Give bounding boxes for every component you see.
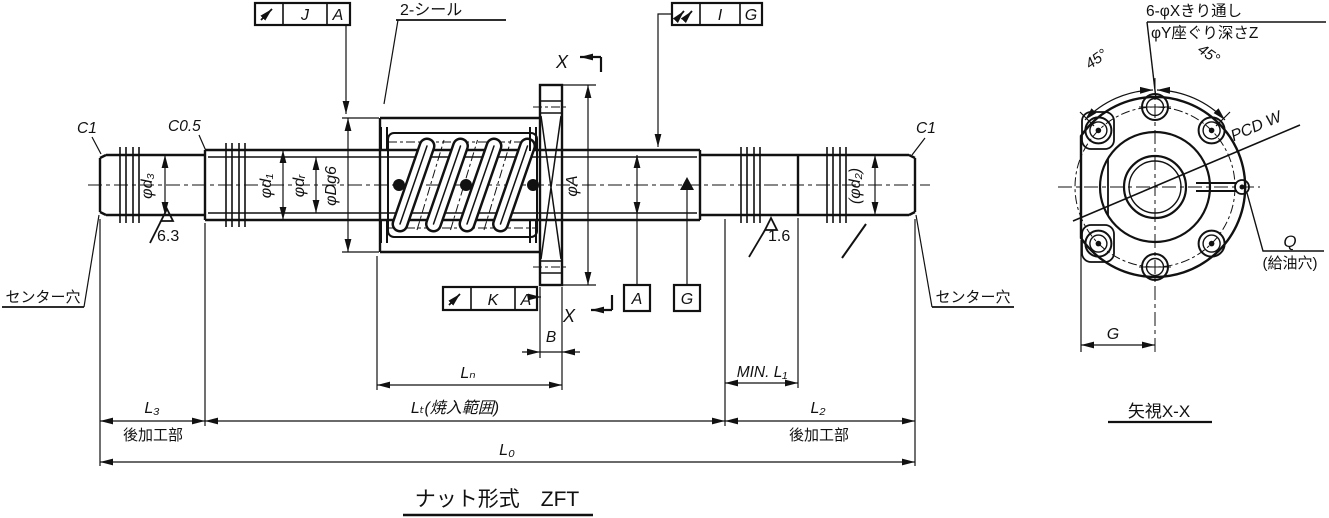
center-hole-left: センター穴 [2,215,99,307]
datum-label: G [681,291,693,308]
tolerance-frame-journal: I G [658,3,762,147]
ball-screw-drawing: J A I G K A A G φd₃ φd [0,0,1329,518]
total-runout-icon [676,11,692,20]
dia-dr-label: φdᵣ [291,174,308,197]
finish-mark-d2 [842,224,866,258]
tolerance-value: J [300,7,310,24]
title-text: ナット形式 ZFT [415,488,580,511]
section-letter: X [555,52,569,72]
bolt-holes-note: 6-φXきり通し [1146,2,1242,20]
center-hole-label: センター穴 [935,289,1010,306]
datum-g: G [674,177,700,311]
ball-track [393,140,539,230]
dim-G-label: G [1107,326,1119,343]
chamfer-step-label: C0.5 [168,118,201,135]
tolerance-value: I [718,7,723,24]
pcd-label: PCD W [1228,108,1285,145]
oil-hole: Q (給油穴) [1196,180,1324,272]
tolerance-value: K [488,292,500,309]
dia-D-label: φDg6 [323,166,340,206]
angle-left-label: 45° [1082,46,1110,73]
angle-right-label: 45° [1194,41,1222,68]
center-hole-label: センター穴 [5,289,80,306]
dim-Lt-label: Lₜ(焼入範囲) [411,399,499,417]
oil-hole-letter: Q [1283,232,1296,251]
chamfer-right-label: C1 [916,120,936,137]
counterbore-note: φY座ぐり深さZ [1151,24,1258,42]
dim-L2-label: L₂ [811,400,826,417]
datum-label: A [631,291,643,308]
dia-d2-label: (φd₂) [847,168,864,204]
dim-B-label: B [546,329,556,346]
surface-finish-fine: 1.6 [749,218,790,257]
tolerance-frame-flange-face: K A [443,287,541,310]
dim-Ln-label: Lₙ [460,365,475,382]
dia-d3-label: φd₃ [139,173,156,199]
circular-runout-icon [449,294,460,305]
center-hole-right: センター穴 [916,215,1014,307]
oil-hole-note: (給油穴) [1263,255,1318,272]
chamfer-left-label: C1 [77,120,97,137]
dia-d1-label: φd₁ [258,174,275,198]
section-letter: X [562,306,576,326]
dia-A-label: φA [564,175,581,196]
tolerance-datum: G [745,7,757,24]
datum-a: A [624,155,650,311]
end-view: 45° 45° 6-φXきり通し φY座ぐり深さZ PCD W Q (給油穴) … [1073,2,1326,422]
section-arrow-bottom: X [562,295,612,326]
finish-fine-value: 1.6 [768,228,790,245]
tolerance-datum: A [332,7,344,24]
drawing-canvas: J A I G K A A G φd₃ φd [0,0,1329,518]
dim-L3-label: L₃ [144,400,159,417]
tolerance-datum: A [520,292,532,309]
dim-minL1-label: MIN. L₁ [737,364,788,381]
length-dimensions: B Lₙ MIN. L₁ L₃ Lₜ(焼入範囲) L₂ L₀ 後加工部 後加工部 [100,218,915,466]
dim-L0-label: L₀ [499,442,515,459]
seal-label: 2-シール [400,2,462,19]
drawing-title: ナット形式 ZFT [403,488,593,515]
seal-callout: 2-シール [384,2,506,104]
section-view-title: 矢視X-X [1128,402,1190,421]
section-arrow-top: X [555,52,601,72]
tolerance-frame-nut-od: J A [255,3,350,114]
finish-rough-value: 6.3 [157,228,179,245]
post-machined-left: 後加工部 [123,427,183,444]
circular-runout-icon [261,9,272,20]
post-machined-right: 後加工部 [789,427,849,444]
